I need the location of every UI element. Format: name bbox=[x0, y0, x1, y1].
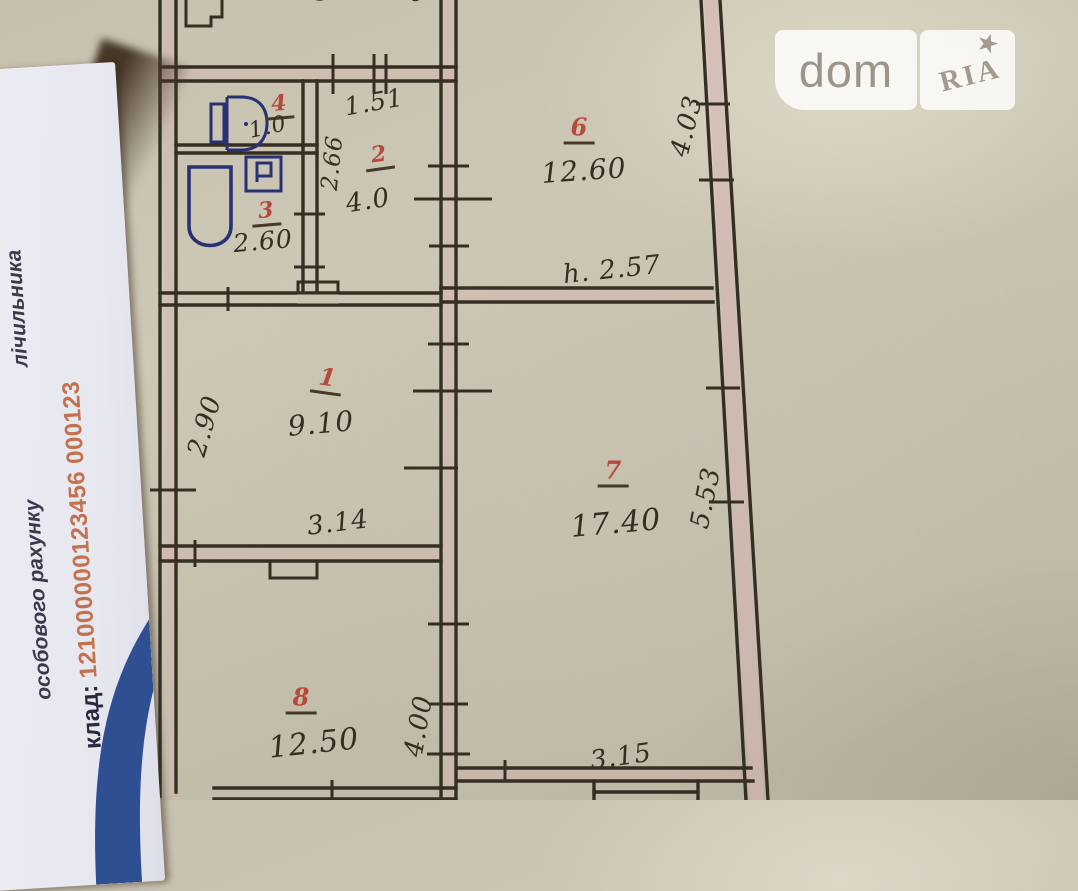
watermark-ria: ★ RIA bbox=[920, 30, 1015, 110]
room-7-area: 17.40 bbox=[569, 505, 662, 543]
dim-top-left-width: 3.60 bbox=[313, 0, 376, 6]
room-6-label: 6 bbox=[564, 116, 595, 145]
sink-icon bbox=[246, 157, 281, 191]
room-3-label: 3 bbox=[250, 198, 282, 227]
room-number: 7 bbox=[598, 459, 629, 488]
room-number: 6 bbox=[564, 116, 595, 145]
room-6-area: 12.60 bbox=[541, 154, 628, 188]
room-1-label: 1 bbox=[310, 364, 344, 397]
room-8-label: 8 bbox=[286, 686, 317, 715]
room-7-label: 7 bbox=[598, 459, 629, 488]
watermark: dom ★ RIA bbox=[775, 30, 1015, 110]
floorplan-photo: { "watermark": { "brand_left": "dom", "b… bbox=[0, 0, 1078, 800]
bathtub-icon bbox=[189, 167, 231, 246]
watermark-dom-text: dom bbox=[799, 43, 893, 98]
stove-icon bbox=[186, 0, 222, 26]
dim-room1-width: 3.14 bbox=[306, 506, 371, 539]
room-number: 3 bbox=[250, 198, 282, 227]
dim-room6-width: 3.15 bbox=[609, 0, 672, 4]
room-number: 8 bbox=[286, 686, 317, 715]
room-number: 2 bbox=[363, 142, 396, 173]
dim-top-left-mark: б bbox=[410, 0, 424, 6]
room-2-label: 2 bbox=[363, 142, 396, 173]
room-3-area: 2.60 bbox=[232, 226, 294, 256]
dim-hall-depth: 2.66 bbox=[319, 134, 348, 191]
room-number: 1 bbox=[310, 364, 344, 397]
room-1-area: 9.10 bbox=[287, 407, 356, 441]
room-2-area: 4.0 bbox=[344, 185, 392, 218]
watermark-dom: dom bbox=[775, 30, 917, 110]
watermark-ria-text: RIA bbox=[937, 52, 1005, 99]
